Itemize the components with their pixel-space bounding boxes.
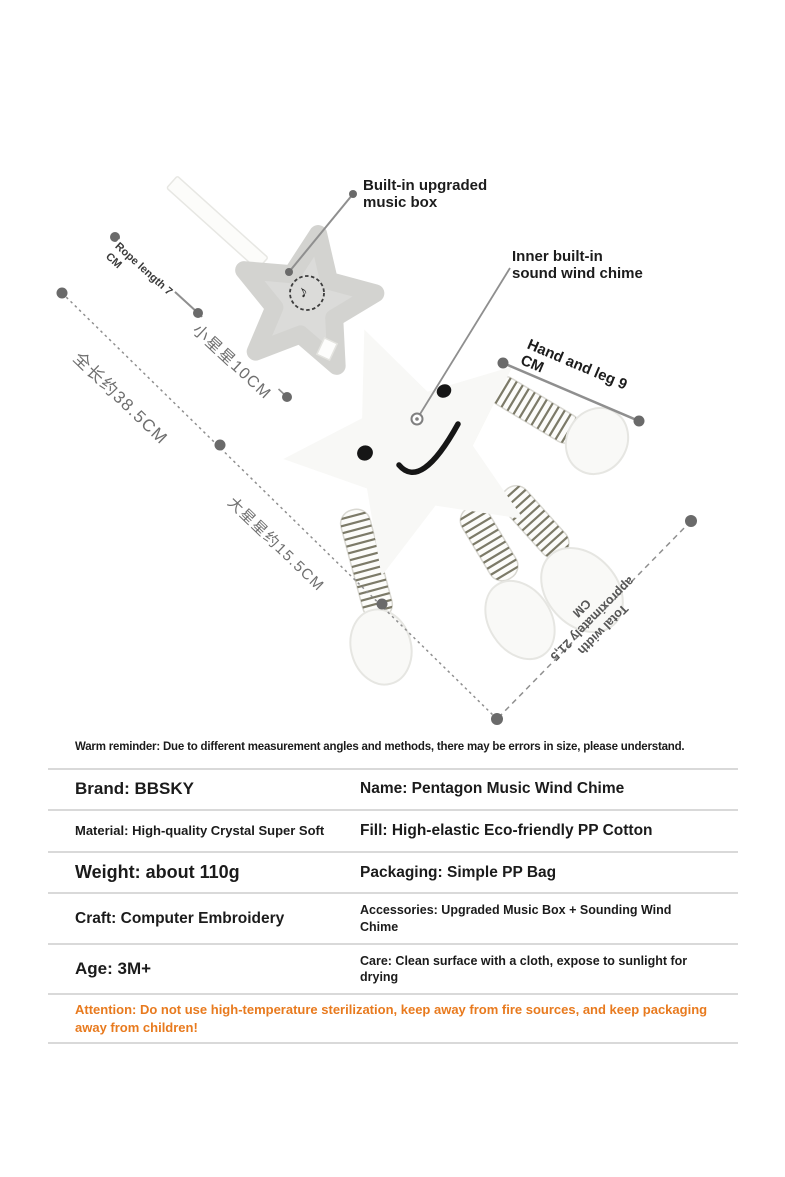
- music-box-callout: Built-in upgraded music box: [363, 177, 487, 212]
- table-row: Craft: Computer Embroidery Accessories: …: [48, 892, 738, 943]
- accessories-cell: Accessories: Upgraded Music Box + Soundi…: [360, 894, 738, 943]
- table-row: Brand: BBSKY Name: Pentagon Music Wind C…: [48, 768, 738, 809]
- music-box-callout-line2: music box: [363, 194, 487, 211]
- wind-chime-callout-line1: Inner built-in: [512, 248, 643, 265]
- material-cell: Material: High-quality Crystal Super Sof…: [48, 815, 360, 848]
- product-detail-page: ♪ Built-in upgraded music box Inner buil…: [0, 0, 785, 1177]
- packaging-cell: Packaging: Simple PP Bag: [360, 855, 738, 891]
- spec-table: Brand: BBSKY Name: Pentagon Music Wind C…: [48, 768, 738, 1044]
- age-cell: Age: 3M+: [48, 950, 360, 988]
- fill-cell: Fill: High-elastic Eco-friendly PP Cotto…: [360, 813, 738, 849]
- table-row: Weight: about 110g Packaging: Simple PP …: [48, 851, 738, 892]
- music-box-callout-line1: Built-in upgraded: [363, 177, 487, 194]
- wind-chime-callout: Inner built-in sound wind chime: [512, 248, 643, 283]
- wind-chime-callout-line2: sound wind chime: [512, 265, 643, 282]
- hanging-ribbon: [167, 176, 268, 270]
- attention-text: Attention: Do not use high-temperature s…: [48, 995, 735, 1042]
- table-row: Age: 3M+ Care: Clean surface with a clot…: [48, 943, 738, 994]
- care-cell: Care: Clean surface with a cloth, expose…: [360, 945, 738, 994]
- foot-left: [342, 603, 420, 692]
- weight-cell: Weight: about 110g: [48, 853, 360, 892]
- wind-chime-marker: [412, 414, 423, 425]
- table-row: Material: High-quality Crystal Super Sof…: [48, 809, 738, 851]
- arm-mitt: [554, 396, 640, 485]
- warm-reminder-text: Warm reminder: Due to different measurem…: [75, 741, 684, 753]
- brand-cell: Brand: BBSKY: [48, 770, 360, 808]
- attention-row: Attention: Do not use high-temperature s…: [48, 993, 738, 1042]
- name-cell: Name: Pentagon Music Wind Chime: [360, 771, 738, 807]
- craft-cell: Craft: Computer Embroidery: [48, 901, 360, 937]
